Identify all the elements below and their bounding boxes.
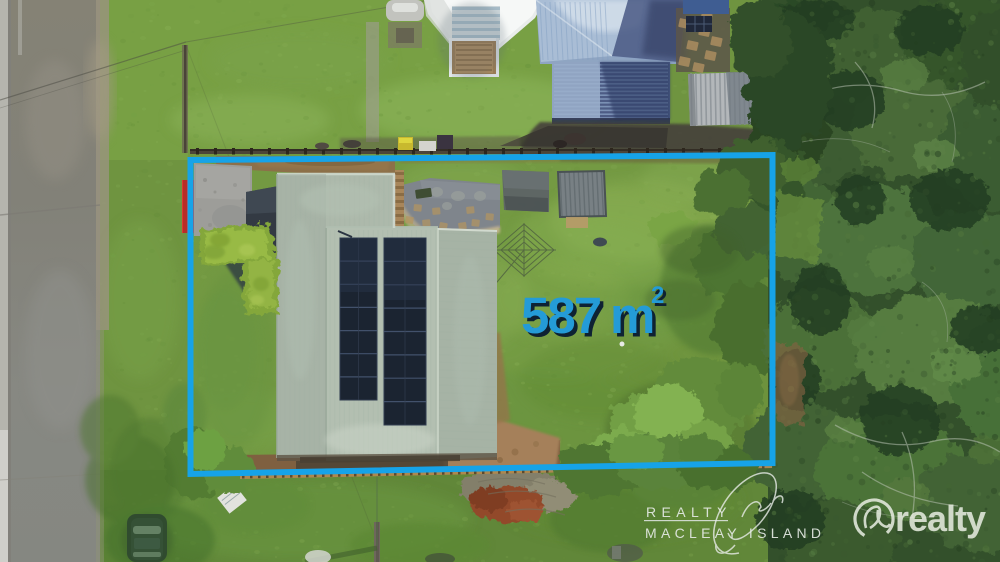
svg-text:2: 2: [651, 282, 664, 309]
svg-text:587: 587: [521, 287, 601, 344]
svg-text:m: m: [610, 287, 655, 344]
svg-text:realty: realty: [895, 498, 986, 539]
